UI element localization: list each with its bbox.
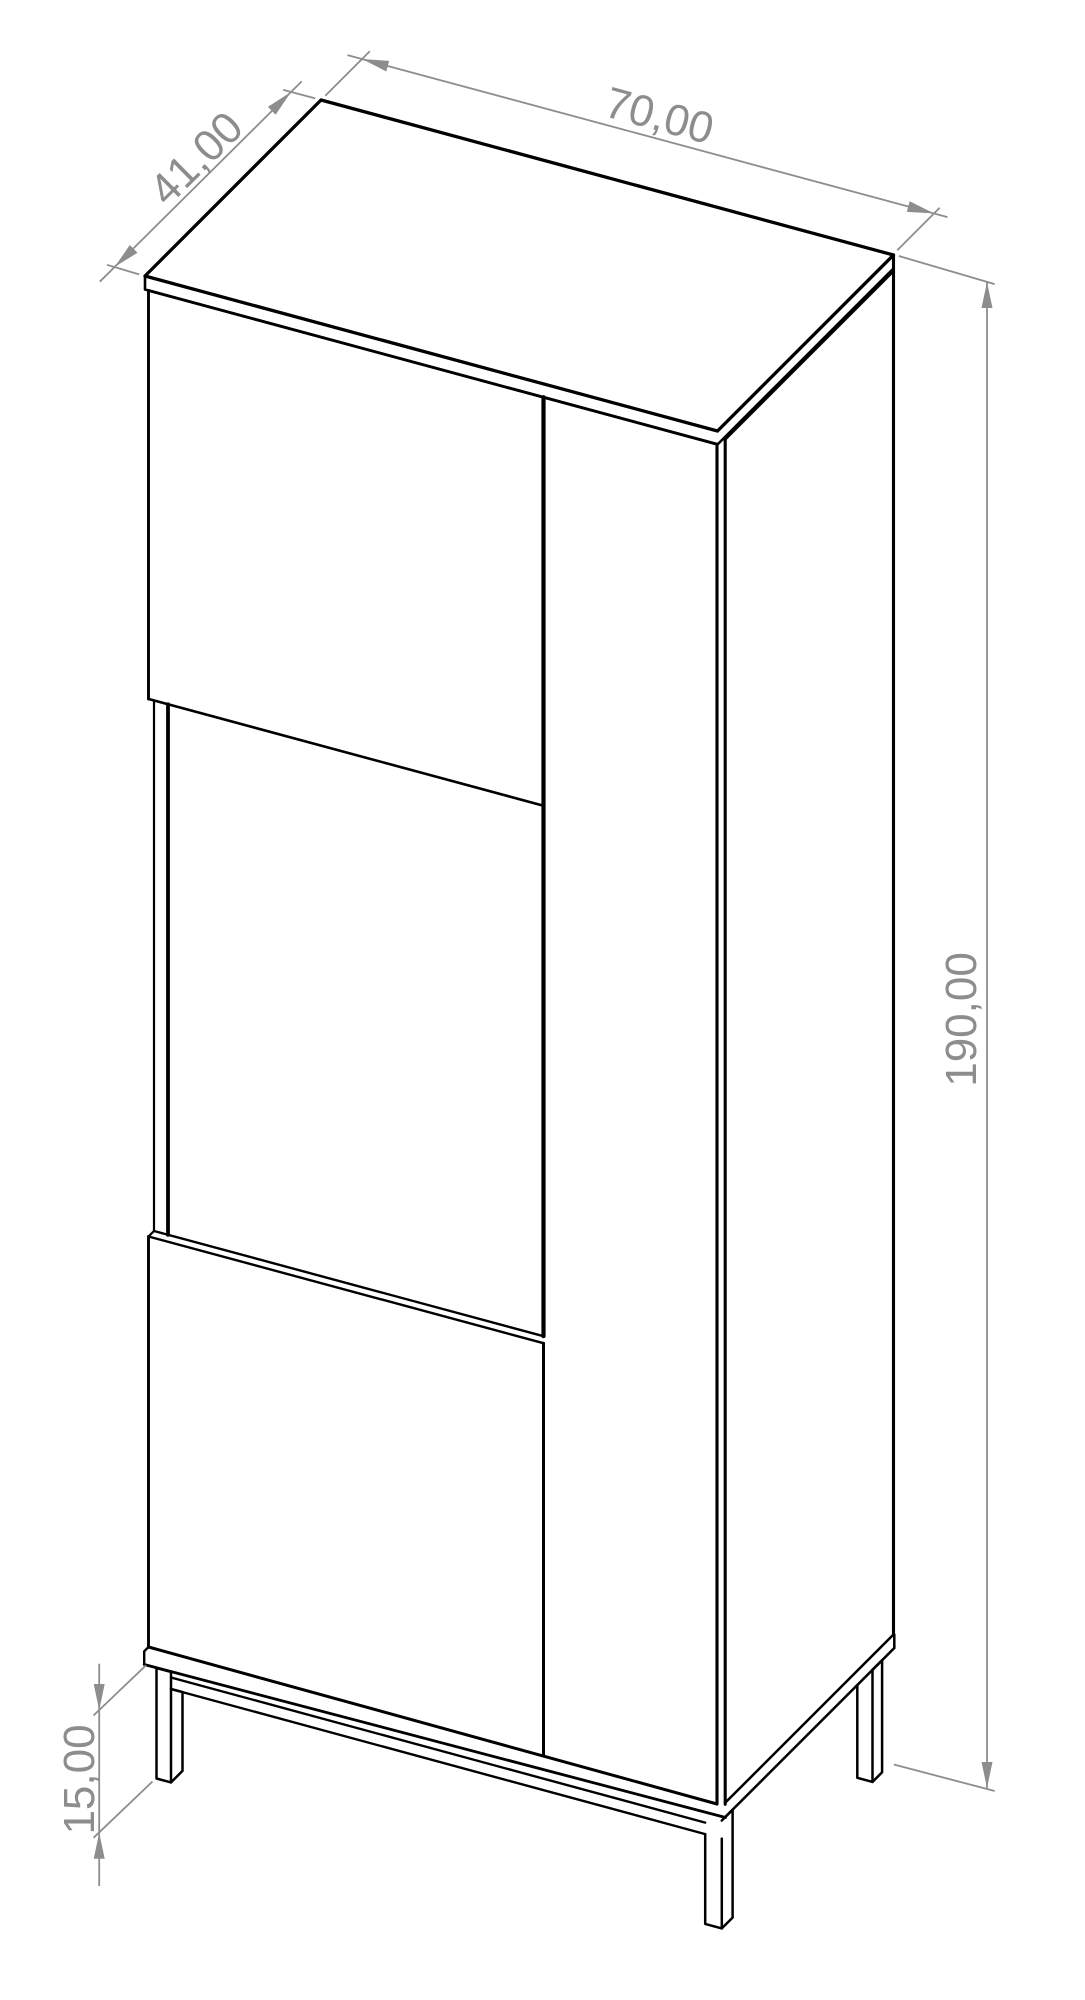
svg-text:70,00: 70,00 bbox=[600, 78, 719, 154]
svg-text:190,00: 190,00 bbox=[937, 952, 986, 1087]
svg-text:41,00: 41,00 bbox=[140, 103, 253, 215]
svg-text:15,00: 15,00 bbox=[55, 1724, 104, 1834]
